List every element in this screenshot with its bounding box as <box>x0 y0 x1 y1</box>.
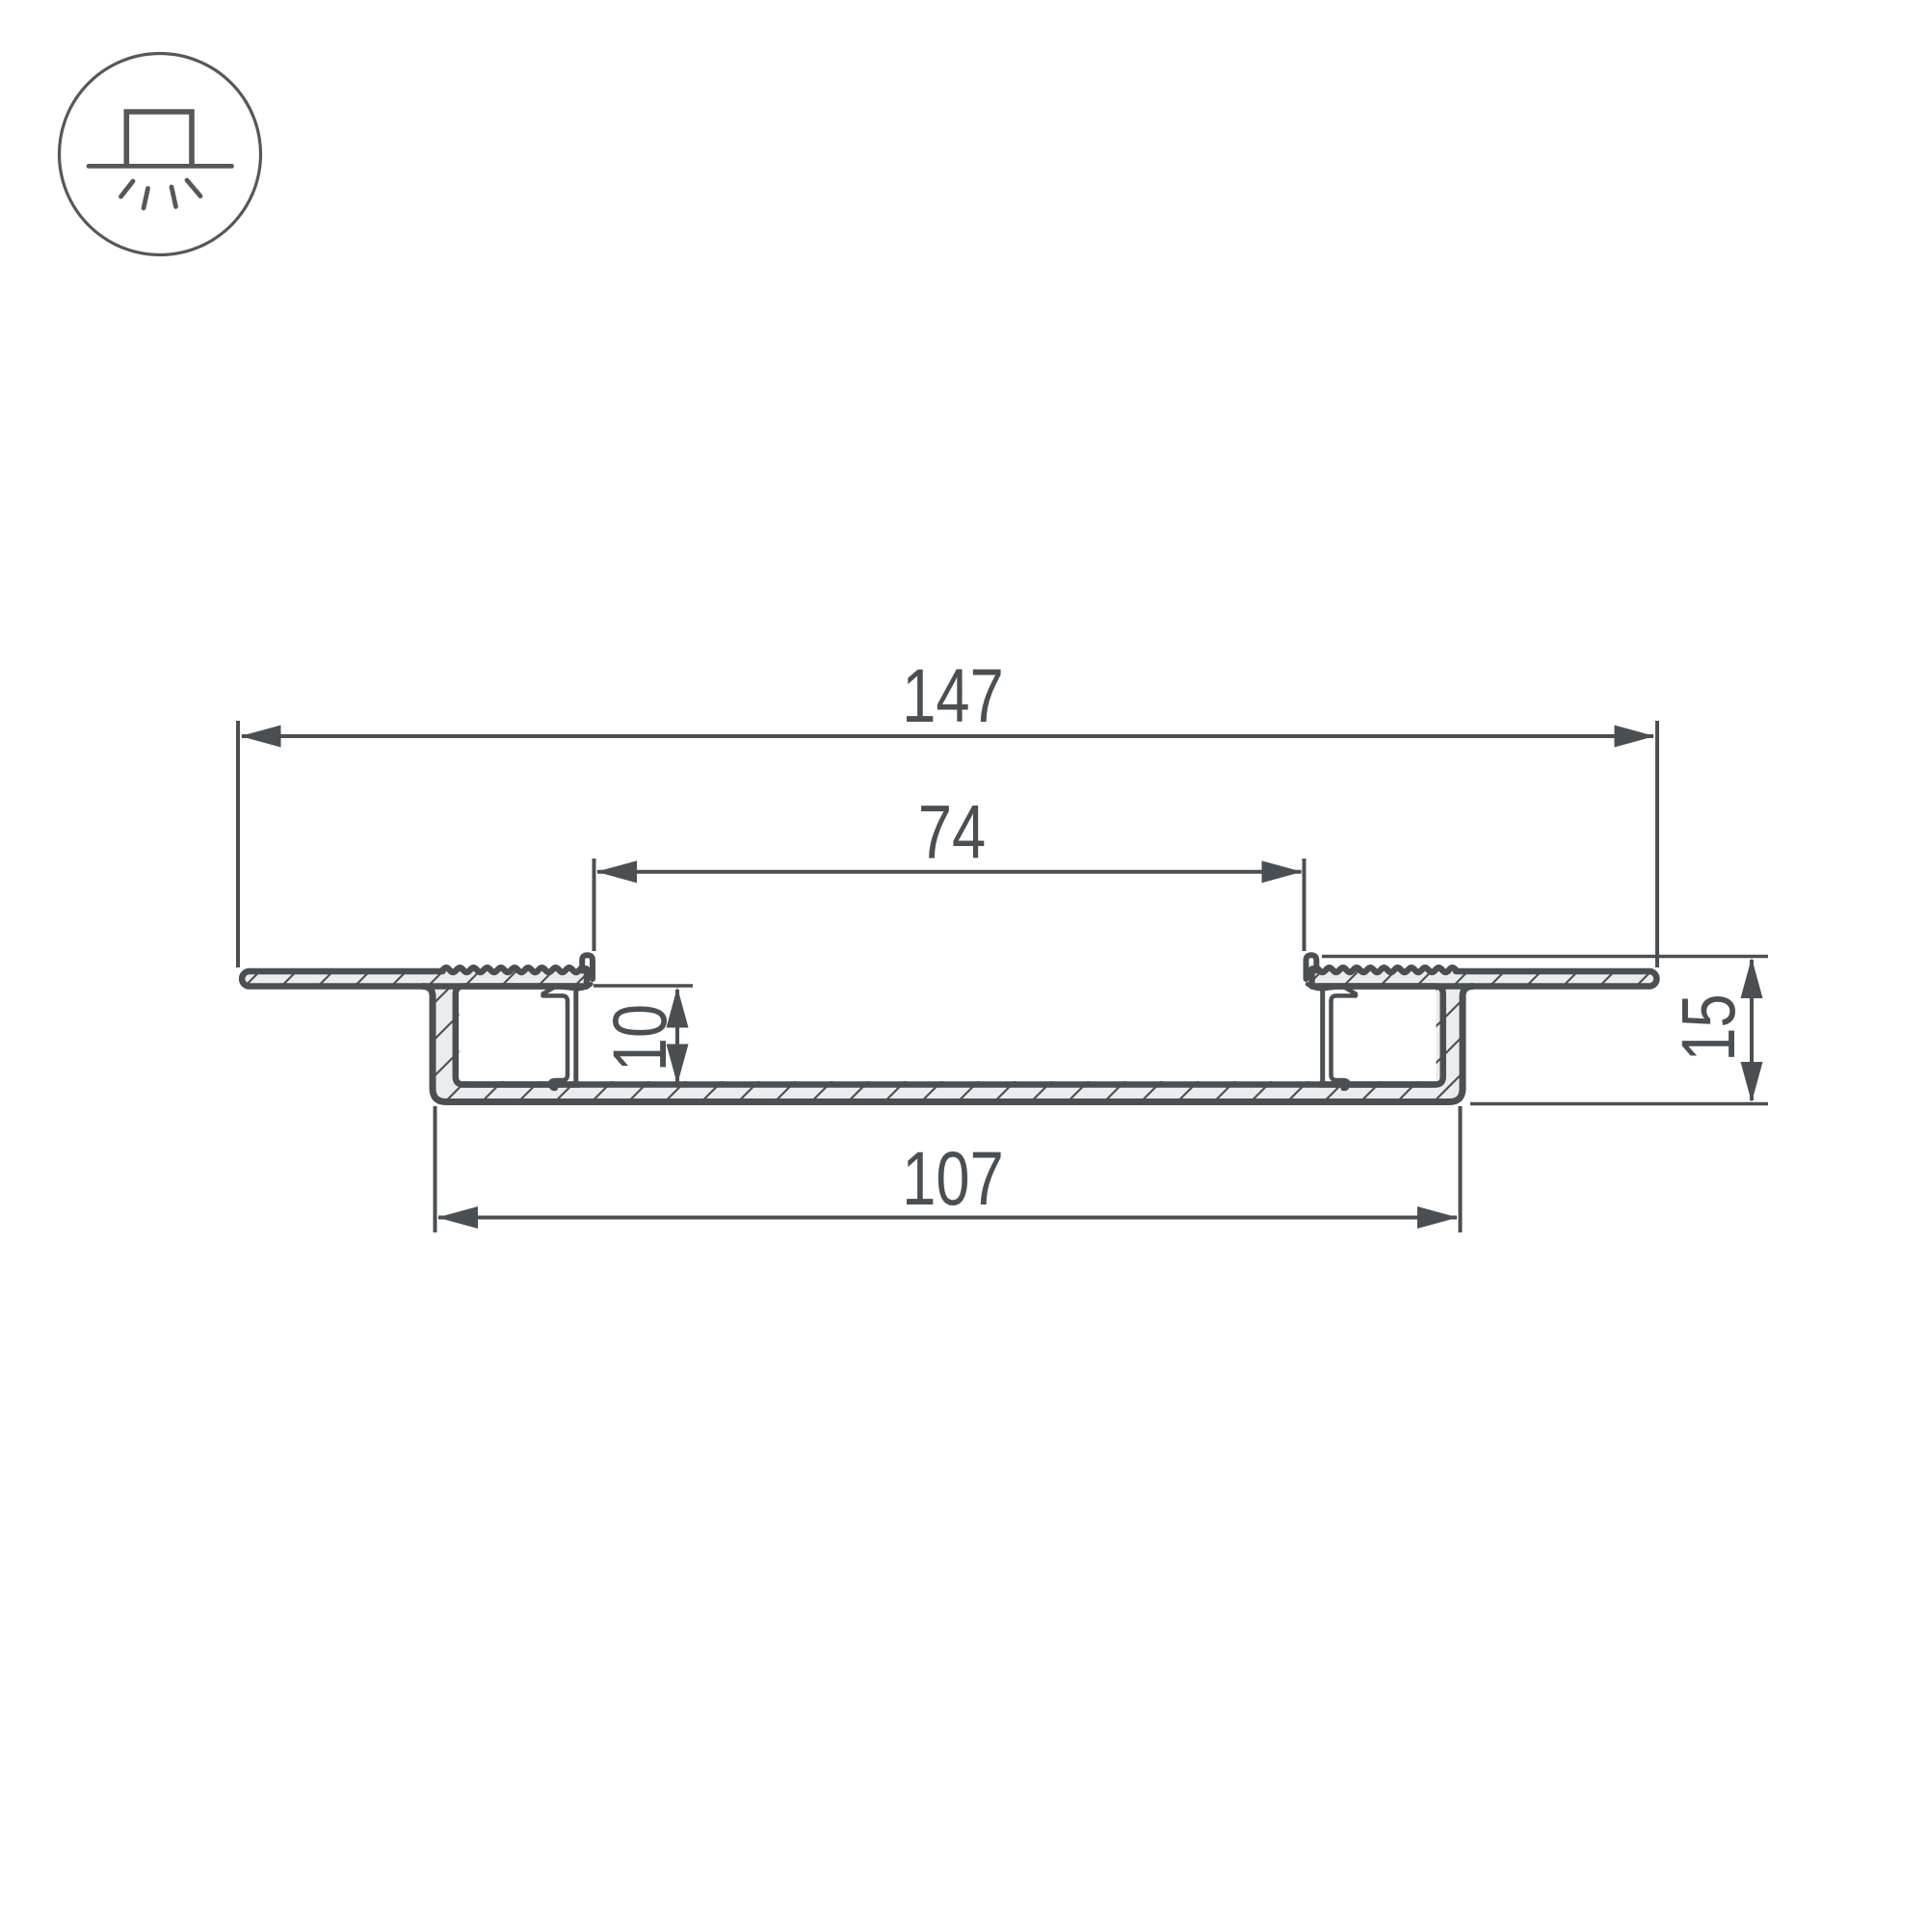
svg-text:10: 10 <box>597 1004 682 1072</box>
svg-text:15: 15 <box>1666 993 1751 1061</box>
svg-text:147: 147 <box>902 653 1003 738</box>
svg-text:74: 74 <box>918 790 986 875</box>
svg-text:107: 107 <box>902 1136 1003 1221</box>
